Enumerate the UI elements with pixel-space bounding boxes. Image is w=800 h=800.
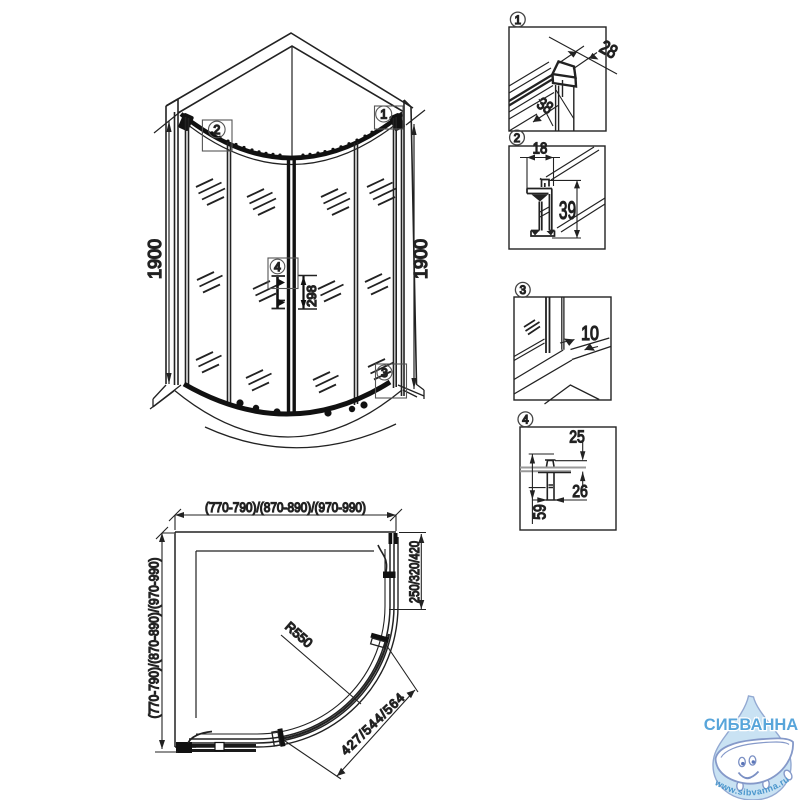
svg-text:25: 25 [569,427,585,447]
svg-text:(770-790)/(870-890)/(970-990): (770-790)/(870-890)/(970-990) [205,499,366,515]
svg-text:1: 1 [515,15,521,27]
svg-text:250/320/420: 250/320/420 [407,541,422,603]
svg-text:10: 10 [581,322,599,344]
svg-text:28: 28 [596,35,621,63]
svg-text:(770-790)/(870-890)/(970-990): (770-790)/(870-890)/(970-990) [146,558,162,719]
svg-text:59: 59 [530,504,550,520]
svg-text:1900: 1900 [145,239,165,279]
svg-text:1: 1 [380,108,387,122]
svg-text:4: 4 [274,260,281,274]
svg-text:R550: R550 [282,619,315,651]
svg-text:4: 4 [522,415,529,427]
svg-text:2: 2 [213,123,220,137]
svg-text:26: 26 [572,481,588,501]
svg-text:427/544/564: 427/544/564 [338,689,408,758]
svg-text:3: 3 [381,366,388,380]
svg-text:2: 2 [514,133,520,145]
svg-text:1900: 1900 [411,239,431,279]
svg-text:СИБВАННА: СИБВАННА [704,716,798,734]
svg-text:298: 298 [304,285,319,307]
svg-text:3: 3 [520,285,526,297]
svg-text:39: 39 [559,197,576,225]
